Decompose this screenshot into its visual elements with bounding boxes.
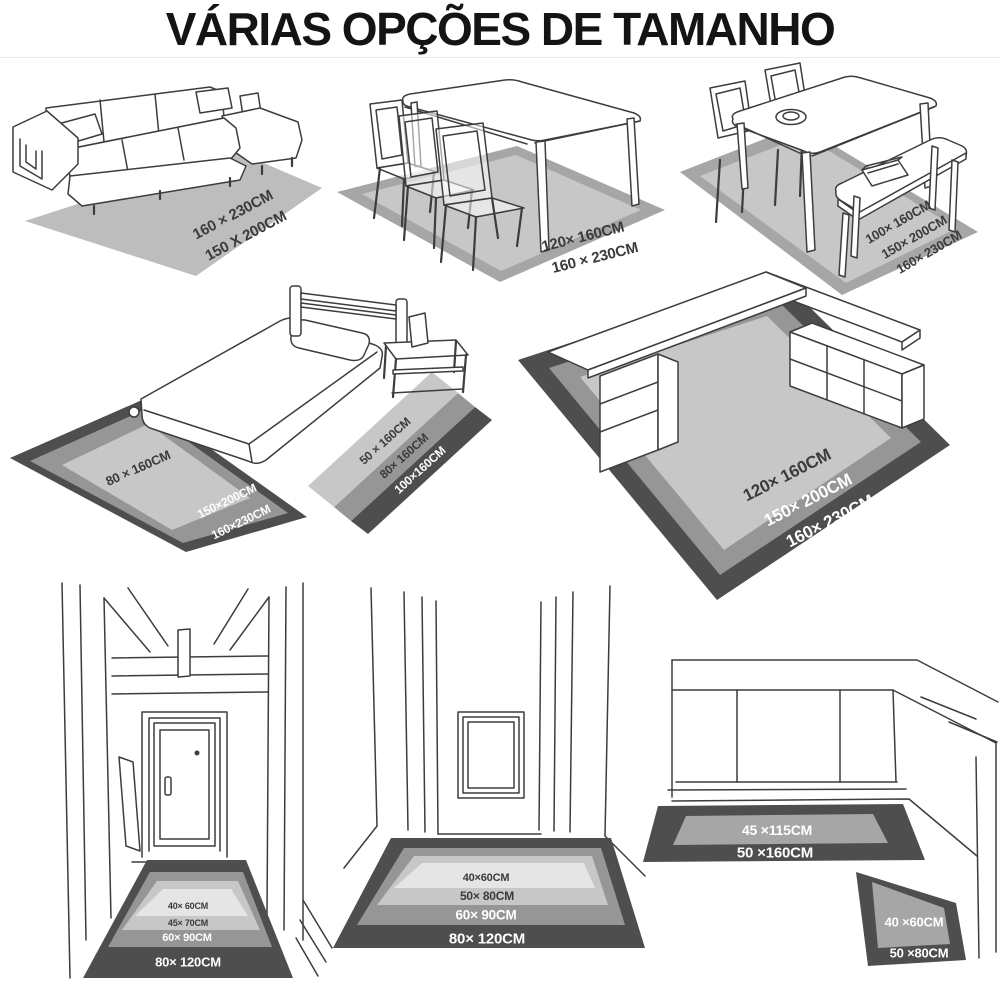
size-label: 50 ×80CM	[890, 946, 949, 961]
dining-bench-scene: 100× 160CM 150× 200CM 160× 230CM	[680, 63, 978, 295]
bed-scene: 80 × 160CM 150×200CM 160×230CM 50 × 160C…	[10, 286, 492, 552]
dining-table-scene: 120× 160CM 160 × 230CM	[337, 80, 665, 282]
size-label: 50× 80CM	[460, 889, 514, 903]
size-label: 40×60CM	[463, 872, 510, 884]
kitchen-scene: 45 ×115CM 50 ×160CM 40 ×60CM 50 ×80CM	[643, 660, 998, 966]
sofa-scene: 160 × 230CM 150 X 200CM	[13, 87, 322, 276]
size-label: 45× 70CM	[168, 918, 208, 928]
size-label: 40× 60CM	[168, 901, 208, 911]
corridor-illustration	[344, 586, 645, 876]
size-label: 80× 120CM	[449, 931, 525, 948]
corridor-scene: 40×60CM 50× 80CM 60× 90CM 80× 120CM	[333, 586, 645, 948]
size-label: 50 ×160CM	[737, 845, 813, 862]
illustration-canvas: 160 × 230CM 150 X 200CM	[0, 0, 1000, 1000]
desk-scene: 120× 160CM 150× 200CM 160× 230CM	[518, 272, 950, 600]
hallway-door-scene: 40× 60CM 45× 70CM 60× 90CM 80× 120CM	[62, 583, 332, 978]
size-label: 80× 120CM	[155, 955, 221, 970]
door-peephole	[195, 751, 200, 756]
door-handle	[165, 777, 171, 795]
size-label: 60× 90CM	[162, 932, 211, 944]
size-label: 60× 90CM	[455, 908, 516, 923]
size-label: 40 ×60CM	[885, 915, 944, 930]
size-label: 45 ×115CM	[742, 822, 812, 838]
size-options-infographic: VÁRIAS OPÇÕES DE TAMANHO 160 × 230CM 150	[0, 0, 1000, 1000]
